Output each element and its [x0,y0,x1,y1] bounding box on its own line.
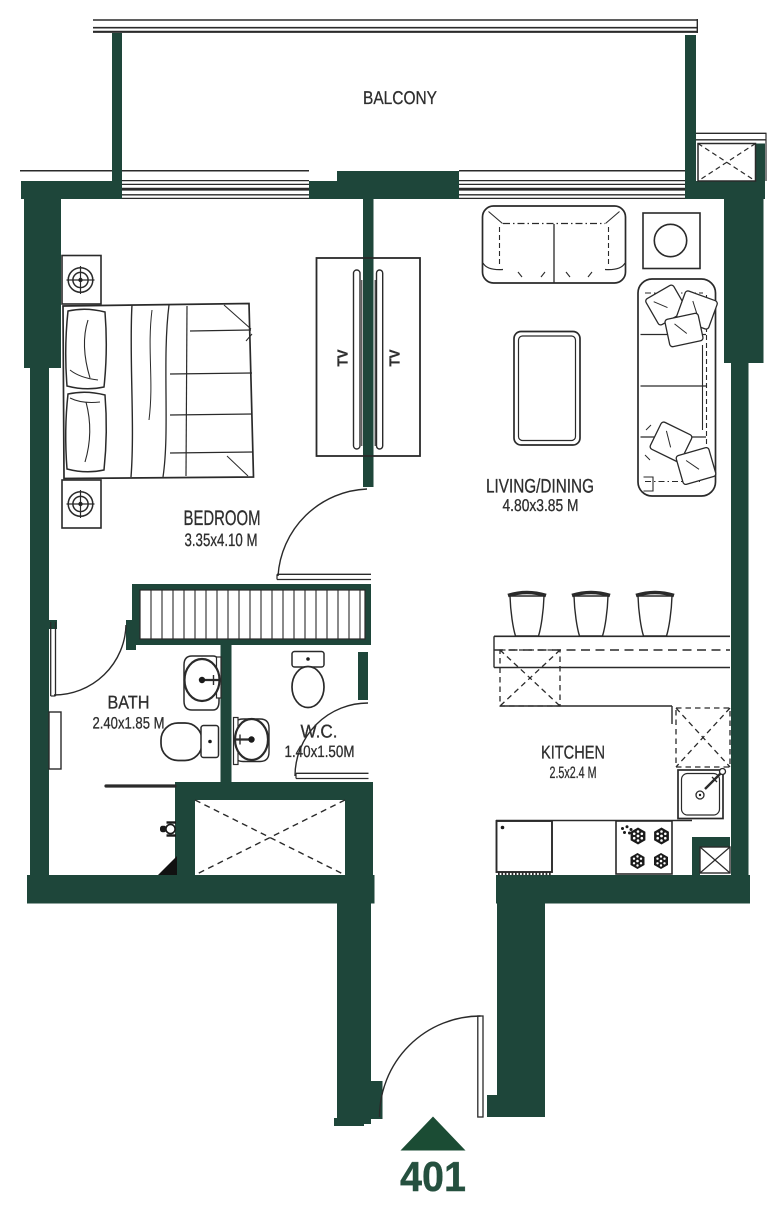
svg-text:3.35x4.10 M: 3.35x4.10 M [185,530,258,550]
svg-text:1.40x1.50M: 1.40x1.50M [285,743,355,761]
svg-text:BEDROOM: BEDROOM [184,507,261,530]
svg-text:KITCHEN: KITCHEN [541,742,605,763]
svg-text:BATH: BATH [108,692,150,713]
svg-text:BALCONY: BALCONY [363,87,437,108]
svg-text:401: 401 [400,1153,466,1200]
svg-text:LIVING/DINING: LIVING/DINING [486,476,594,498]
svg-text:2.5x2.4 M: 2.5x2.4 M [550,764,597,782]
svg-text:TV: TV [388,349,404,366]
svg-text:TV: TV [336,349,352,366]
svg-text:2.40x1.85 M: 2.40x1.85 M [93,715,165,733]
svg-text:4.80x3.85 M: 4.80x3.85 M [503,496,579,515]
